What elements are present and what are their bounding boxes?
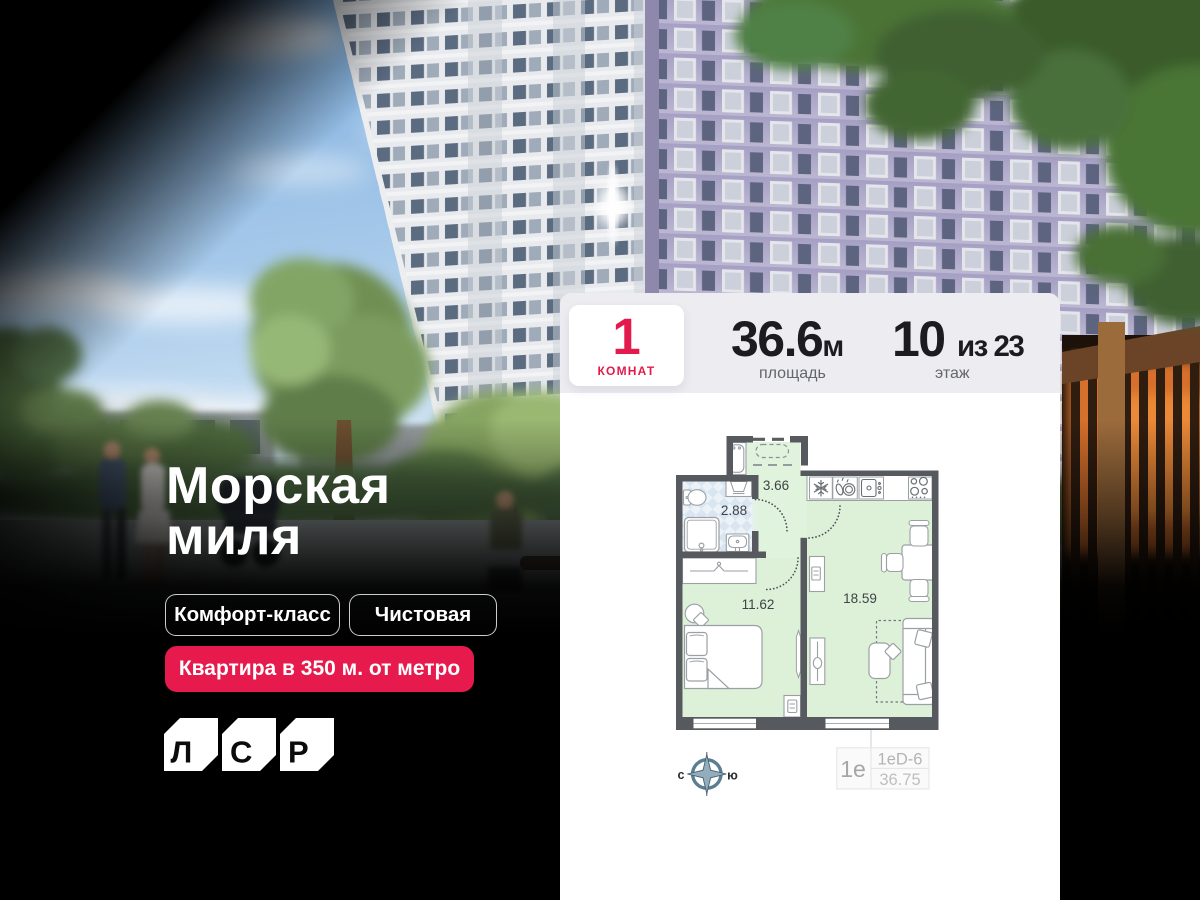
svg-text:36.75: 36.75: [879, 771, 920, 789]
svg-text:3.66: 3.66: [763, 478, 789, 493]
svg-text:2.88: 2.88: [721, 503, 747, 518]
svg-text:1е: 1е: [840, 756, 866, 782]
svg-text:1eD-6: 1eD-6: [878, 751, 923, 769]
svg-text:Р: Р: [288, 735, 309, 770]
svg-text:С: С: [230, 735, 252, 770]
svg-text:с: с: [678, 768, 685, 782]
svg-text:11.62: 11.62: [742, 597, 775, 612]
svg-text:18.59: 18.59: [843, 591, 877, 606]
svg-text:ю: ю: [727, 769, 738, 783]
svg-text:Л: Л: [171, 735, 193, 770]
